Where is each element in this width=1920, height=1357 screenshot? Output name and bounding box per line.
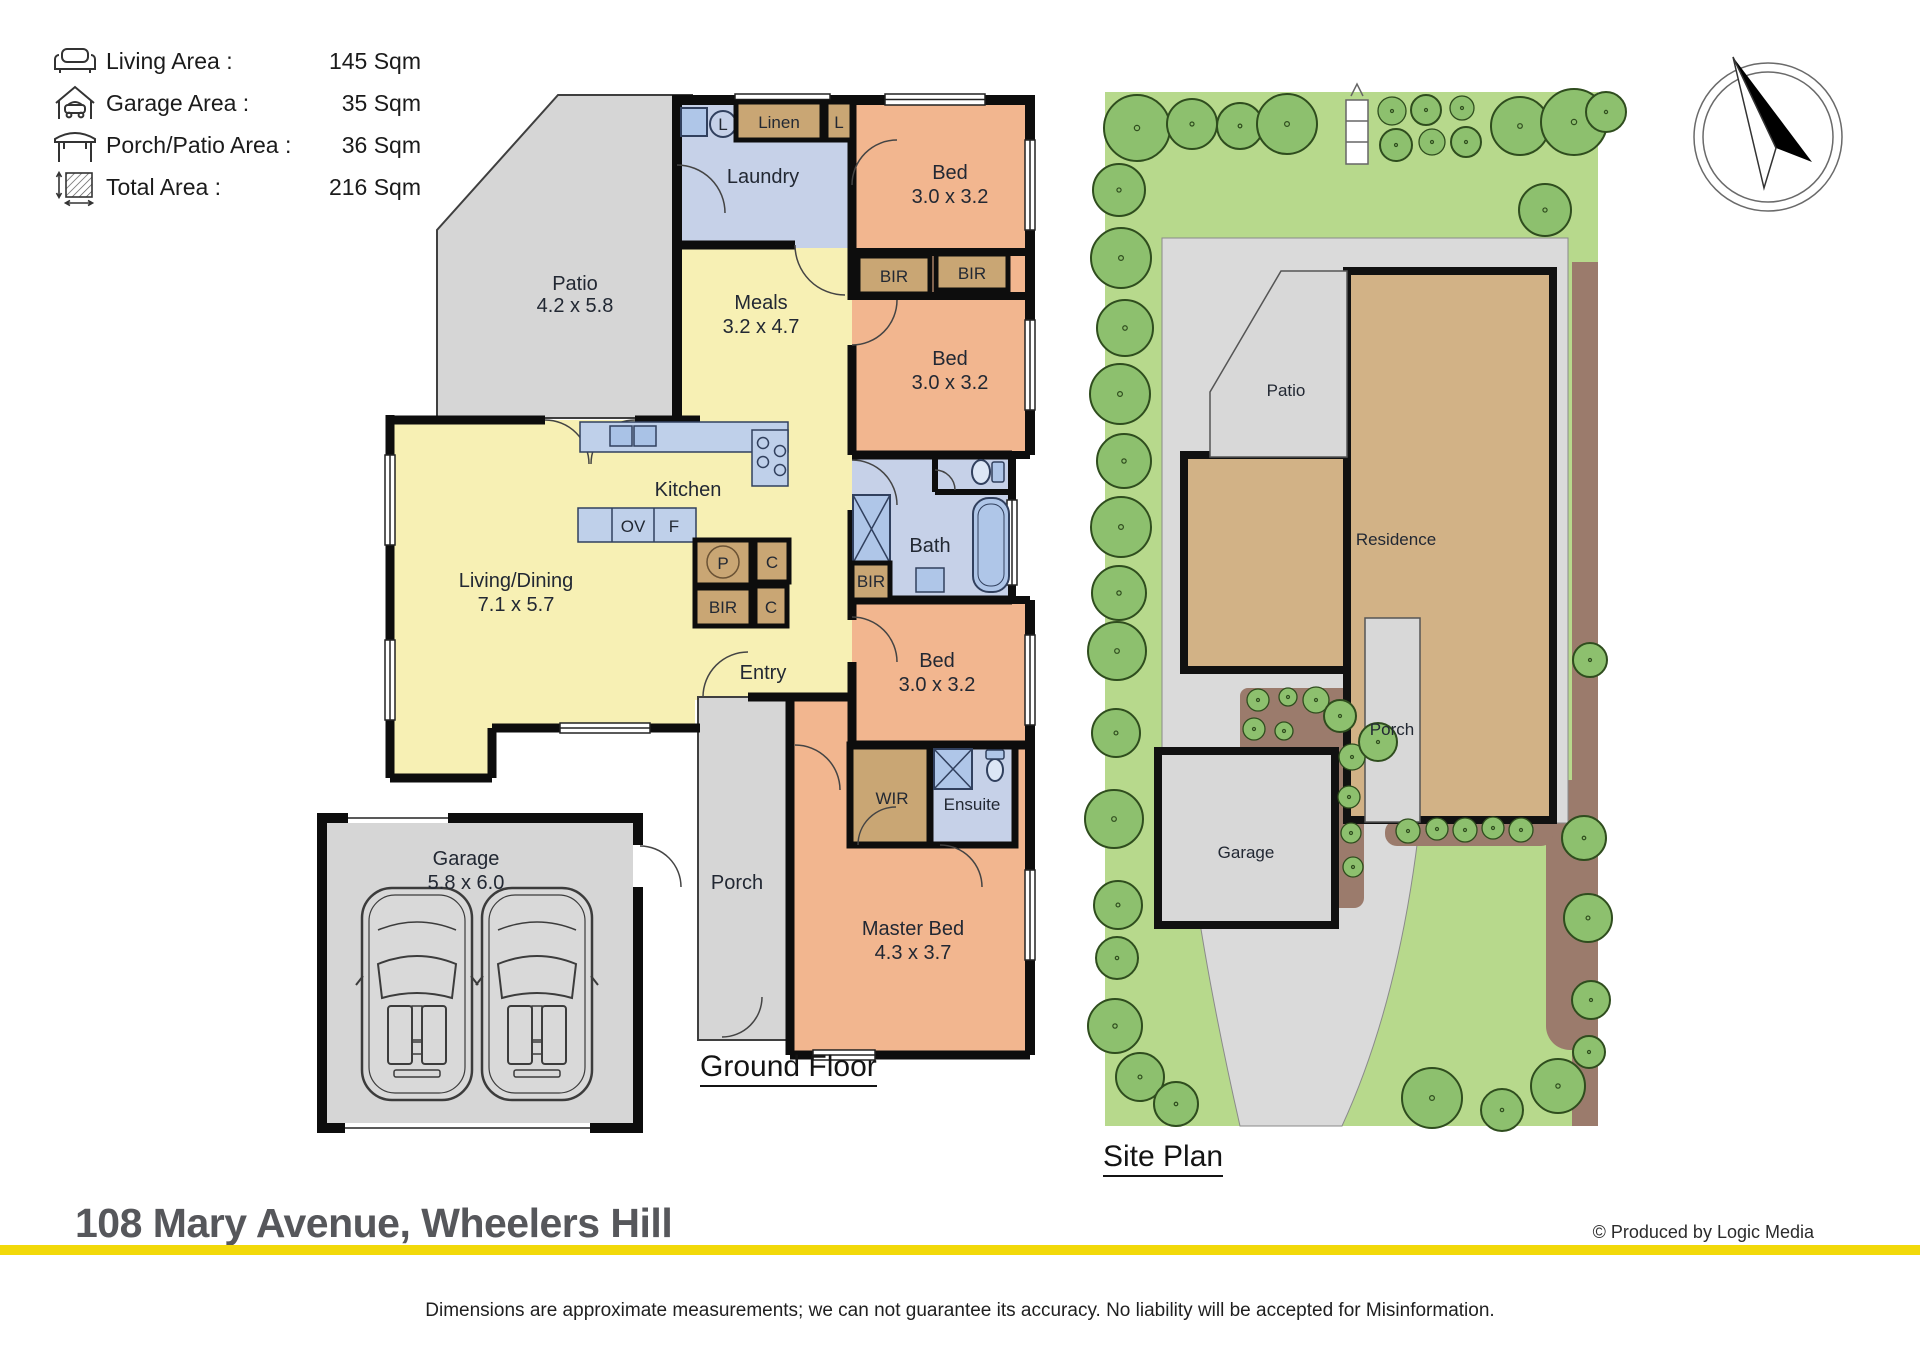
linen-label: Linen [758,113,800,132]
tree-icon [1380,129,1412,161]
c2-label: C [765,598,777,617]
address-title: 108 Mary Avenue, Wheelers Hill [75,1200,672,1247]
tree-icon [1343,857,1363,877]
patio-area [437,95,692,418]
legend-row-total: Total Area : 216 Sqm [52,166,421,208]
tree-icon [1094,881,1142,929]
garage-label: Garage [433,848,500,870]
tree-icon [1378,97,1406,125]
area-icon [52,167,98,207]
residence-wing [1184,455,1362,670]
canopy-icon [52,125,98,165]
washing-machine-icon [681,108,707,136]
tree-icon [1402,1068,1462,1128]
tree-icon [1275,722,1293,740]
tree-icon [1091,497,1151,557]
ground-floor-heading: Ground Floor [700,1050,877,1087]
ov-label: OV [621,517,646,536]
porch-label: Porch [711,872,763,894]
tree-icon [1481,1089,1523,1131]
patio-dims: 4.2 x 5.8 [537,295,614,317]
c1-label: C [766,553,778,572]
vanity-icon [916,568,944,592]
tree-icon [1573,1036,1605,1068]
toilet-icon [987,759,1003,781]
tree-icon [1338,786,1360,808]
accent-divider [0,1245,1920,1255]
sofa-icon [52,41,98,81]
tree-icon [1096,937,1138,979]
porch-area [698,697,790,1040]
tree-icon [1257,94,1317,154]
legend-row-living: Living Area : 145 Sqm [52,40,421,82]
bed3-label: Bed [919,650,955,672]
tree-icon [1243,718,1265,740]
site-plan-heading: Site Plan [1103,1140,1223,1177]
bir3-label: BIR [709,598,737,617]
producer-credit: © Produced by Logic Media [1593,1222,1814,1243]
bed2-dims: 3.0 x 3.2 [912,372,989,394]
tree-icon [1573,643,1607,677]
bed1-label: Bed [932,162,968,184]
laundry-label: Laundry [727,166,799,188]
area-legend: Living Area : 145 Sqm Garage Area : 35 S… [52,40,421,208]
master-label: Master Bed [862,918,964,940]
tree-icon [1411,95,1441,125]
bed3-dims: 3.0 x 3.2 [899,674,976,696]
tree-icon [1562,816,1606,860]
car-icon [476,888,598,1100]
sink-icon [610,426,632,446]
ground-floor-plan: Patio 4.2 x 5.8 Laundry Linen L L Bed 3.… [322,94,1035,1133]
patio-label: Patio [552,273,598,295]
legend-row-garage: Garage Area : 35 Sqm [52,82,421,124]
legend-value: 35 Sqm [321,90,421,117]
site-porch-label: Porch [1370,720,1414,739]
p-label: P [717,554,728,573]
tree-icon [1426,818,1448,840]
tree-icon [1453,818,1477,842]
tree-icon [1564,894,1612,942]
living-dims: 7.1 x 5.7 [478,594,555,616]
toilet-icon [972,460,990,484]
tree-icon [1167,99,1217,149]
tree-icon [1324,700,1356,732]
tree-icon [1097,434,1151,488]
tree-icon [1531,1059,1585,1113]
tree-icon [1450,96,1474,120]
credit-text: Produced by Logic Media [1611,1222,1814,1242]
legend-value: 216 Sqm [321,174,421,201]
meals-dims: 3.2 x 4.7 [723,316,800,338]
tree-icon [1090,364,1150,424]
tree-icon [1092,709,1140,757]
f-label: F [669,517,679,536]
tree-icon [1104,95,1170,161]
site-plan: Patio Residence Porch Garage [1085,84,1626,1131]
legend-label: Garage Area : [106,90,321,117]
bed3-area [852,600,1030,745]
tree-icon [1097,300,1153,356]
bed1-dims: 3.0 x 3.2 [912,186,989,208]
sink-icon [634,426,656,446]
tree-icon [1085,790,1143,848]
site-residence-label: Residence [1356,530,1436,549]
bir2-label: BIR [958,264,986,283]
tree-icon [1396,819,1420,843]
tree-icon [1509,818,1533,842]
legend-value: 145 Sqm [321,48,421,75]
tree-icon [1451,127,1481,157]
tree-icon [1154,1082,1198,1126]
bir1-label: BIR [880,267,908,286]
floorplan-page: Patio 4.2 x 5.8 Laundry Linen L L Bed 3.… [0,0,1920,1357]
tree-icon [1093,164,1145,216]
tree-icon [1482,817,1504,839]
disclaimer-text: Dimensions are approximate measurements;… [0,1300,1920,1322]
tub-l-label: L [718,115,727,134]
site-garage-label: Garage [1218,843,1275,862]
living-label: Living/Dining [459,570,574,592]
cooktop-icon [752,430,788,486]
tree-icon [1419,129,1445,155]
kitchen-label: Kitchen [655,479,722,501]
tree-icon [1341,823,1361,843]
ensuite-label: Ensuite [944,795,1001,814]
master-dims: 4.3 x 3.7 [875,942,952,964]
legend-label: Total Area : [106,174,321,201]
garage-dims: 5.8 x 6.0 [428,872,505,894]
tree-icon [1092,566,1146,620]
tree-icon [1572,981,1610,1019]
legend-label: Porch/Patio Area : [106,132,321,159]
bed2-label: Bed [932,348,968,370]
legend-label: Living Area : [106,48,321,75]
compass-icon [1694,57,1842,211]
wir-label: WIR [875,789,908,808]
garage-icon [52,83,98,123]
bath-label: Bath [909,535,950,557]
tree-icon [1519,184,1571,236]
legend-value: 36 Sqm [321,132,421,159]
tree-icon [1088,622,1146,680]
site-patio-label: Patio [1267,381,1306,400]
meals-label: Meals [734,292,787,314]
car-icon [356,888,478,1100]
tree-icon [1088,999,1142,1053]
entry-label: Entry [740,662,787,684]
tree-icon [1247,689,1269,711]
tree-icon [1586,92,1626,132]
legend-row-porch: Porch/Patio Area : 36 Sqm [52,124,421,166]
bir4-label: BIR [857,572,885,591]
tree-icon [1279,688,1297,706]
tree-icon [1091,228,1151,288]
linen-l-label: L [834,113,843,132]
copyright-icon: © [1593,1222,1606,1242]
site-garage [1158,751,1335,925]
